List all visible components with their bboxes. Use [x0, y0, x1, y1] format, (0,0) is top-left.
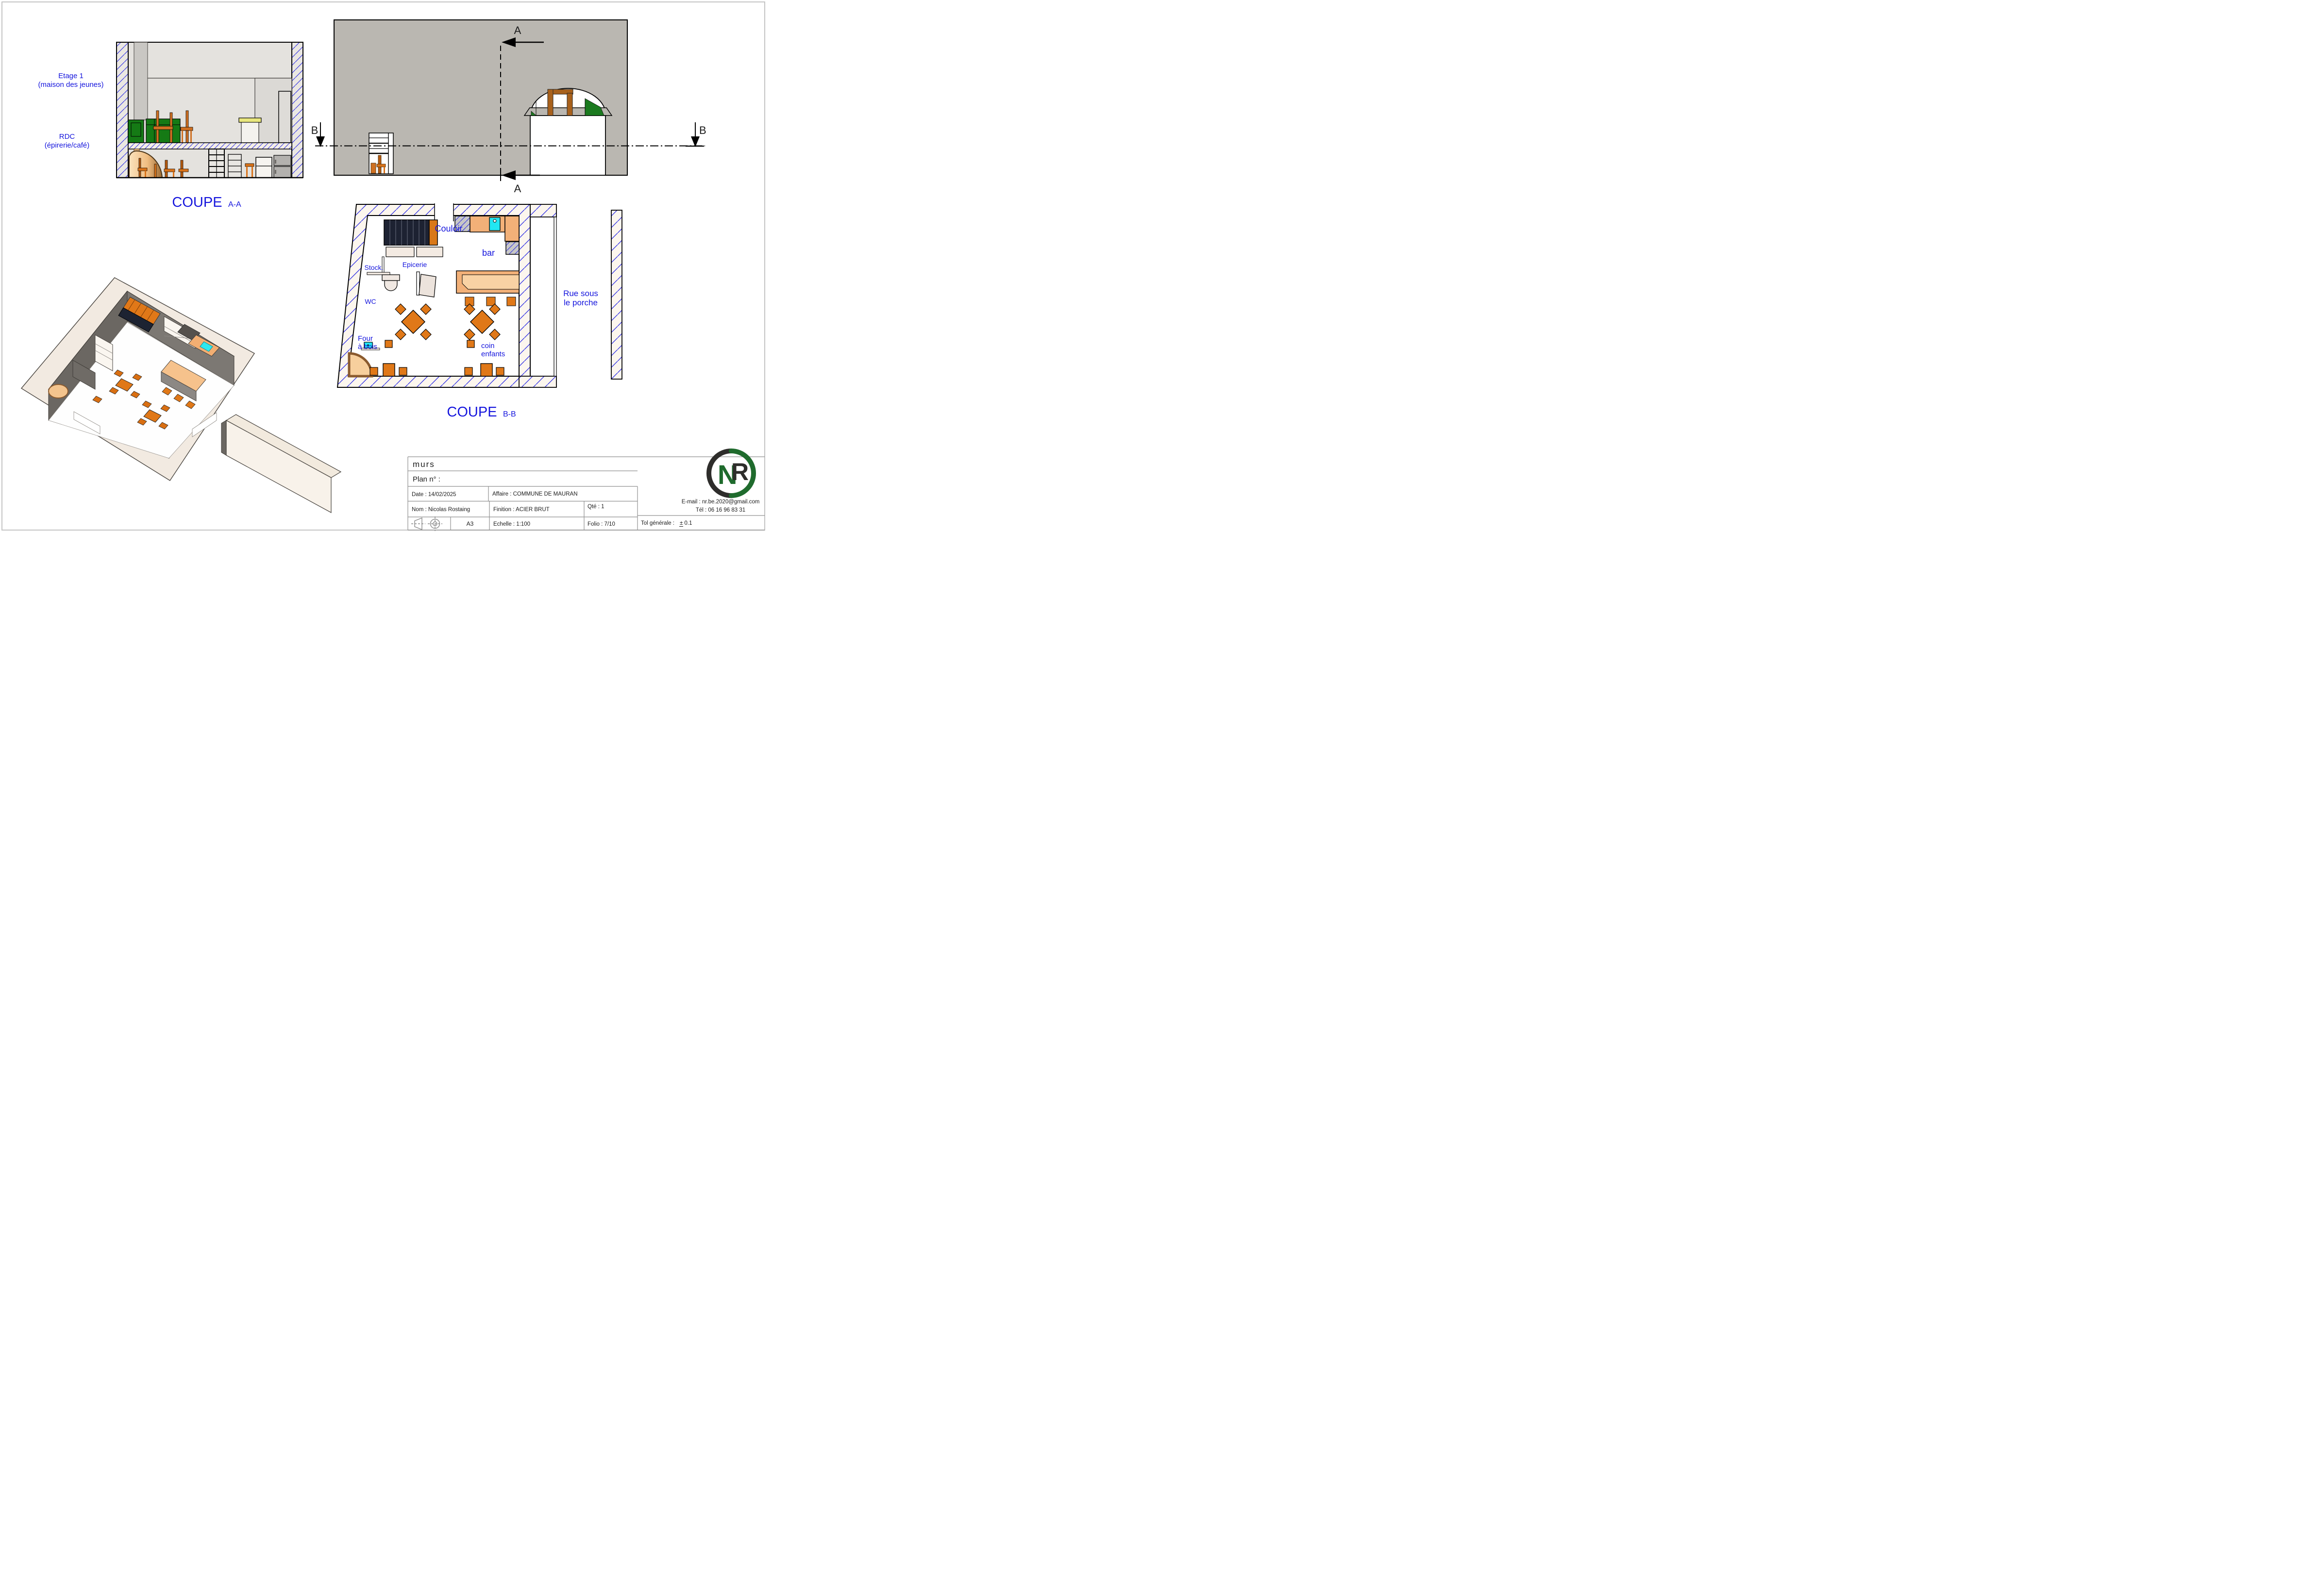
room-label-four-line1: Four [358, 334, 373, 343]
room-label-coin-line2: enfants [481, 350, 505, 358]
section-view-coupe-aa: Etage 1 (maison des jeunes) RDC (épireri… [38, 42, 303, 210]
section-wall-right [292, 42, 303, 178]
floor-plan-coupe-bb: Couloir bar Stock. Epicerie WC Four à bo… [337, 203, 622, 420]
title-coupe-aa-sub: A-A [228, 200, 241, 209]
porch-wall [554, 217, 556, 376]
fridge [256, 157, 272, 178]
toilet-bowl [385, 281, 397, 291]
email-field: E-mail : nr.be.2020@gmail.com [682, 499, 760, 505]
toilet-tank [382, 275, 400, 281]
title-coupe-aa: COUPE [172, 195, 222, 210]
chimney [134, 42, 148, 120]
room-label-wc: WC [365, 298, 376, 305]
label-rdc-line2: (épirerie/café) [45, 141, 90, 150]
marker-a-bottom: A [514, 183, 521, 195]
floor-slab [128, 143, 292, 149]
part-name: murs [413, 460, 435, 469]
staircase [384, 220, 437, 245]
street-wall-strip [611, 210, 622, 379]
elevation-view: A A B B [311, 20, 706, 195]
marker-b-right: B [699, 124, 706, 136]
table-group-2 [464, 304, 500, 340]
plan-number-label: Plan n° : [413, 475, 440, 483]
bar-stool [507, 297, 516, 306]
tolerance-label: Tol générale : [641, 520, 674, 526]
label-etage1-line1: Etage 1 [58, 72, 84, 80]
format-field: A3 [467, 520, 474, 527]
facade-niche [369, 133, 393, 174]
yellow-table [239, 118, 261, 122]
nom-field: Nom : Nicolas Rostaing [412, 507, 470, 513]
room-label-epicerie: Epicerie [403, 261, 427, 268]
label-street-line1: Rue sous [563, 289, 598, 298]
drawing-sheet: Etage 1 (maison des jeunes) RDC (épireri… [0, 0, 767, 532]
logo-letter-r: R [731, 458, 749, 485]
wc-door [419, 274, 436, 297]
affaire-field: Affaire : COMMUNE DE MAURAN [492, 491, 578, 497]
title-coupe-bb: COUPE [447, 404, 497, 420]
shelf-epicerie [386, 247, 414, 257]
iso-oven [49, 384, 68, 398]
title-coupe-bb-sub: B-B [503, 410, 516, 418]
label-street-line2: le porche [564, 298, 598, 307]
echelle-field: Echelle : 1:100 [493, 521, 530, 527]
door-etage [279, 91, 291, 143]
table-group-1 [395, 304, 431, 340]
iso-detached-wall [221, 415, 341, 513]
date-field: Date : 14/02/2025 [412, 492, 456, 498]
room-label-stock: Stock. [365, 264, 384, 271]
room-label-coin-line1: coin [481, 342, 495, 350]
gray-cabinet [274, 155, 291, 166]
folio-field: Folio : 7/10 [588, 521, 615, 527]
shelf-epicerie-2 [417, 247, 443, 257]
marker-b-left: B [311, 124, 319, 136]
qte-field: Qté : 1 [588, 504, 604, 510]
label-etage1-line2: (maison des jeunes) [38, 81, 103, 89]
isometric-view [21, 278, 341, 513]
title-block: murs Plan n° : Date : 14/02/2025 Affaire… [408, 451, 765, 531]
wc-area [367, 272, 436, 297]
bar-zone [455, 216, 519, 306]
finition-field: Finition : ACIER BRUT [493, 507, 550, 513]
tolerance-value: ± 0.1 [680, 520, 692, 526]
projection-symbol-icon [411, 516, 442, 531]
drawing-canvas: Etage 1 (maison des jeunes) RDC (épireri… [0, 0, 767, 532]
room-label-couloir: Couloir [435, 224, 462, 233]
nr-logo: N R [709, 451, 754, 496]
marker-a-top: A [514, 24, 521, 36]
wood-oven [349, 353, 372, 376]
section-wall-left [117, 42, 128, 178]
couloir-opening [435, 203, 453, 216]
room-label-four-line2: à bois [358, 343, 377, 351]
tel-field: Tél : 06 16 96 83 31 [696, 507, 745, 513]
room-label-bar: bar [482, 248, 495, 258]
label-rdc-line1: RDC [59, 133, 75, 141]
